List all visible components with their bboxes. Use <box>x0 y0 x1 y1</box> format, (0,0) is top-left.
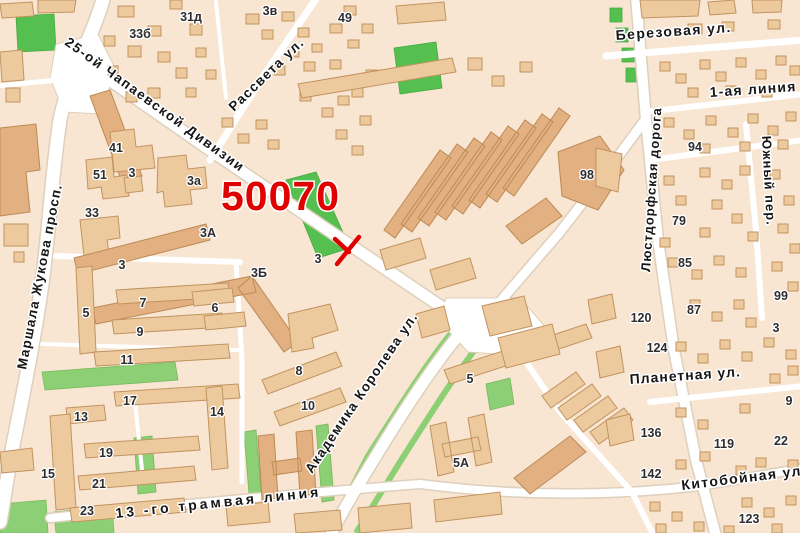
building-number-label: 3 <box>129 166 136 180</box>
building-number-label: 124 <box>647 341 668 355</box>
building-number-label: 6 <box>212 301 219 315</box>
building-number-label: 3 <box>773 321 780 335</box>
building-number-label: 15 <box>41 467 55 481</box>
building-number-label: 3 <box>315 252 322 266</box>
building-number-label: 3Б <box>251 266 267 280</box>
building-number-label: 123 <box>739 512 760 526</box>
building-number-label: 10 <box>301 399 315 413</box>
building-number-label: 31д <box>180 10 202 24</box>
building-number-label: 85 <box>678 256 692 270</box>
map-image: 25-ой Чапаевской ДивизииРассвета ул.Марш… <box>0 0 800 533</box>
building-number-label: 41 <box>109 141 123 155</box>
building-number-label: 22 <box>774 434 788 448</box>
building-number-label: 94 <box>688 140 702 154</box>
building-number-label: 9 <box>137 325 144 339</box>
building-number-label: 120 <box>631 311 652 325</box>
building-number-label: 99 <box>774 289 788 303</box>
building-number-label: 13 <box>74 410 88 424</box>
building-number-label: 17 <box>123 394 137 408</box>
building-number-label: 14 <box>210 405 224 419</box>
building-number-label: 136 <box>641 426 662 440</box>
building-number-label: 49 <box>338 11 352 25</box>
building-number-label: 142 <box>641 467 662 481</box>
building-number-label: 33 <box>85 206 99 220</box>
building-number-label: 3в <box>263 4 278 18</box>
building-number-label: 33б <box>129 27 151 41</box>
building-number-label: 79 <box>672 214 686 228</box>
building-number-label: 8 <box>296 364 303 378</box>
building-number-label: 5А <box>453 456 469 470</box>
building-number-label: 23 <box>80 504 94 518</box>
building <box>0 448 34 473</box>
building-number-label: 3А <box>200 226 216 240</box>
building-number-label: 87 <box>687 303 701 317</box>
building-number-label: 119 <box>714 437 734 451</box>
building-number-label: 7 <box>140 296 147 310</box>
building-number-label: 19 <box>99 446 113 460</box>
map-code-label: 50070 <box>221 173 340 219</box>
building-number-label: 51 <box>93 168 107 182</box>
building-number-label: 3а <box>187 174 202 188</box>
building-number-label: 21 <box>92 477 106 491</box>
building-number-label: 11 <box>120 353 133 367</box>
building-number-label: 3 <box>119 258 126 272</box>
map-canvas[interactable]: 25-ой Чапаевской ДивизииРассвета ул.Марш… <box>0 0 800 533</box>
building-number-label: 98 <box>580 168 594 182</box>
building-number-label: 5 <box>467 372 474 386</box>
building-number-label: 5 <box>83 306 90 320</box>
building-number-label: 9 <box>786 394 793 408</box>
